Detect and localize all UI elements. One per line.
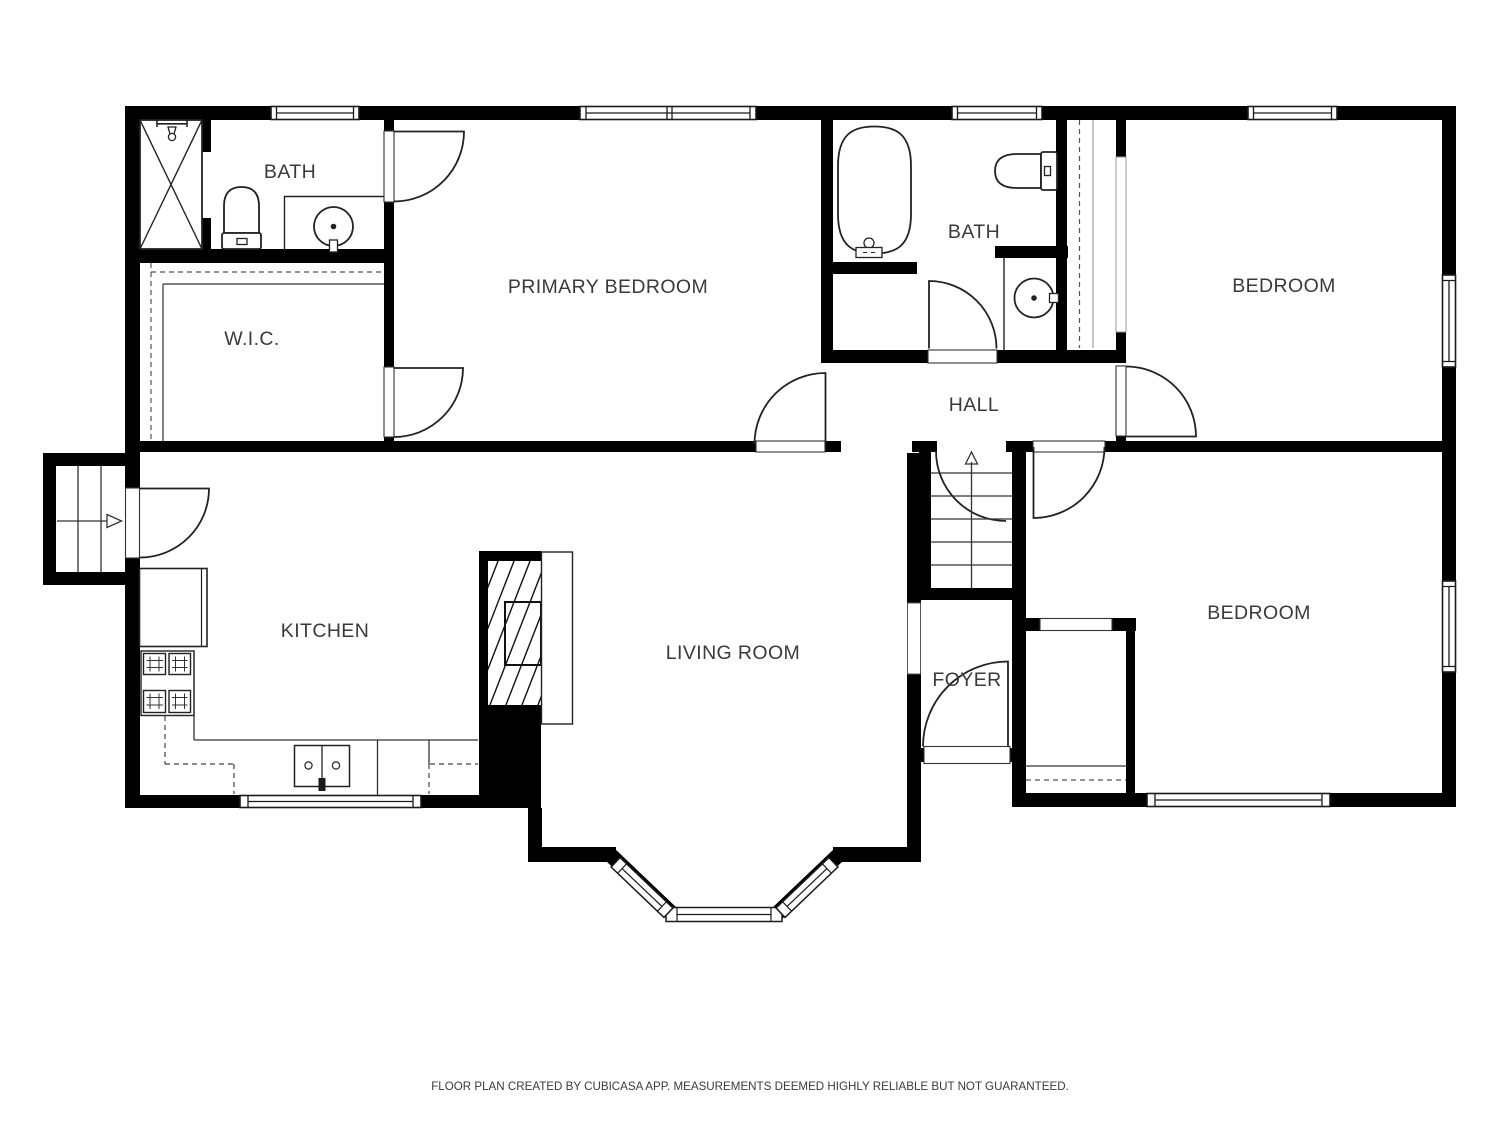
svg-text:HALL: HALL — [949, 394, 999, 416]
svg-text:PRIMARY BEDROOM: PRIMARY BEDROOM — [508, 276, 708, 298]
svg-text:FOYER: FOYER — [932, 669, 1001, 691]
svg-text:BEDROOM: BEDROOM — [1207, 602, 1311, 624]
svg-text:BATH: BATH — [948, 221, 1000, 243]
svg-text:LIVING ROOM: LIVING ROOM — [666, 642, 800, 664]
svg-text:BEDROOM: BEDROOM — [1232, 275, 1336, 297]
svg-text:KITCHEN: KITCHEN — [281, 620, 369, 642]
svg-text:FLOOR PLAN CREATED BY CUBICASA: FLOOR PLAN CREATED BY CUBICASA APP. MEAS… — [431, 1080, 1069, 1093]
svg-text:W.I.C.: W.I.C. — [224, 328, 279, 350]
svg-text:BATH: BATH — [264, 161, 316, 183]
